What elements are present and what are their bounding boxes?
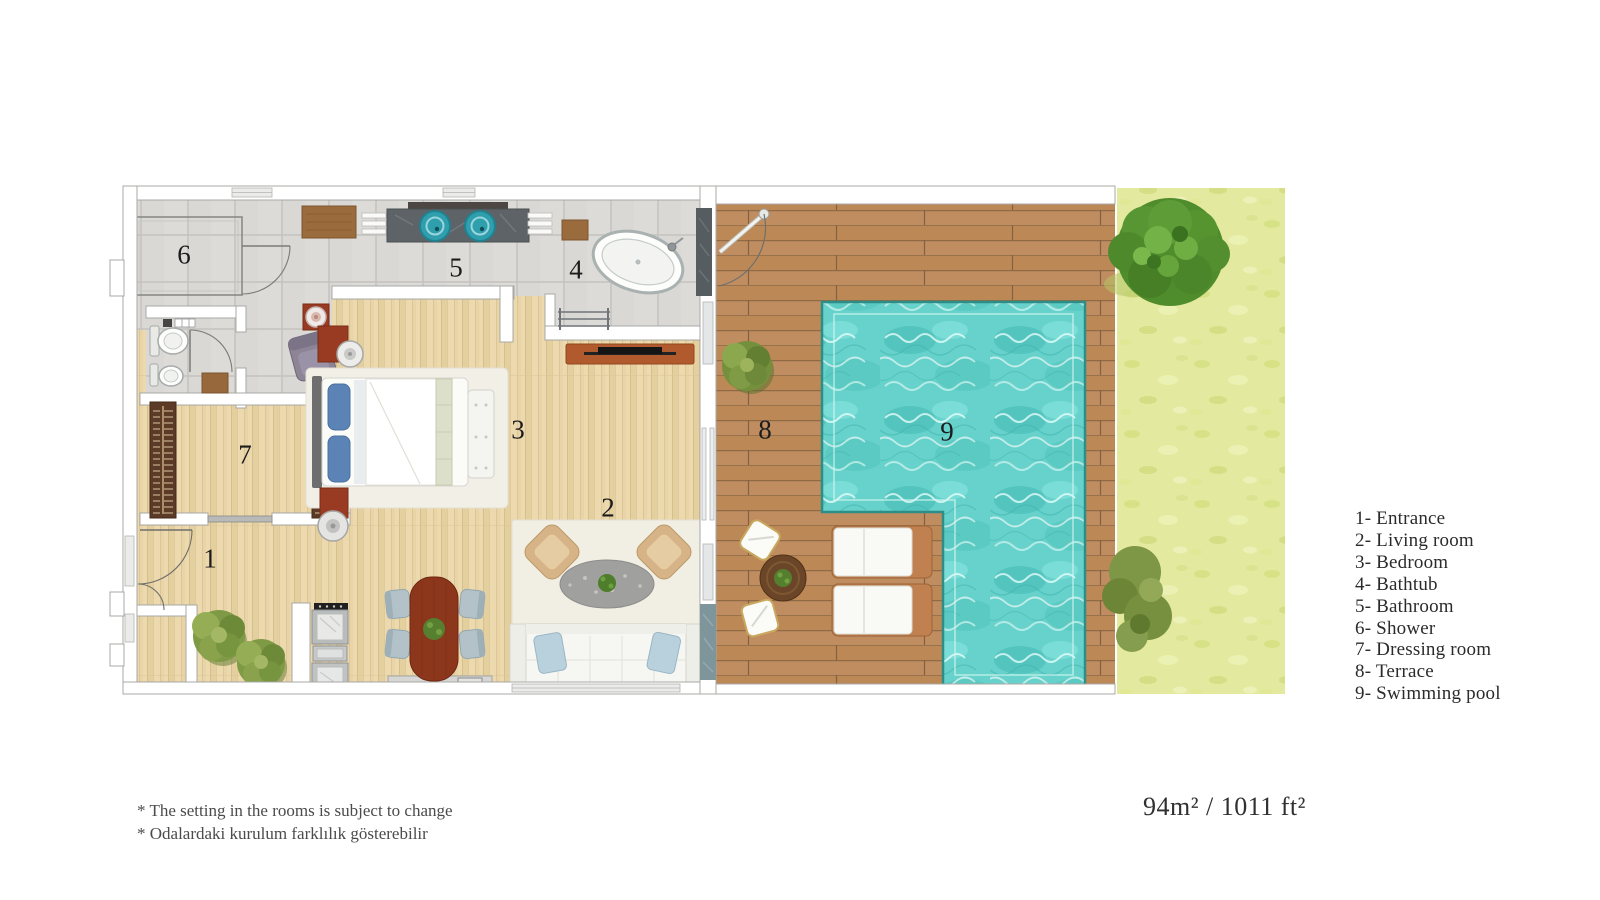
lamp-icon [337, 341, 363, 367]
room-label-terrace: 8 [758, 415, 772, 446]
sink-icon [465, 211, 495, 241]
room-label-shower: 6 [177, 240, 191, 271]
window-icon [125, 614, 134, 642]
legend-item: 9- Swimming pool [1355, 683, 1501, 705]
window-icon [703, 302, 713, 364]
sink-icon [420, 211, 450, 241]
wc-cabinet [202, 373, 228, 393]
vent-grille-icon [175, 319, 195, 327]
terrace-chair [740, 598, 779, 637]
dining-chair [459, 629, 486, 659]
legend-item: 8- Terrace [1355, 661, 1501, 683]
lamp-icon [318, 511, 348, 541]
room-label-living-room: 2 [601, 493, 615, 524]
terrace-table [760, 555, 806, 601]
toilet-icon [150, 326, 188, 356]
sun-lounger [832, 526, 932, 578]
towel-rack-icon [362, 213, 386, 234]
legend-item: 4- Bathtub [1355, 574, 1501, 596]
legend: 1- Entrance 2- Living room 3- Bedroom 4-… [1355, 508, 1501, 705]
room-label-dressing-room: 7 [238, 440, 252, 471]
footnote-english: * The setting in the rooms is subject to… [137, 799, 453, 822]
room-label-bathroom: 5 [449, 253, 463, 284]
pillow-icon [328, 436, 350, 482]
dining-table [410, 577, 458, 681]
grass-area [1102, 188, 1285, 694]
window-icon [703, 544, 713, 600]
bed-bench [468, 390, 494, 478]
legend-item: 7- Dressing room [1355, 639, 1501, 661]
window-icon [125, 536, 134, 586]
coffee-table-rug [560, 560, 654, 608]
footnote-turkish: * Odalardaki kurulum farklılık gösterebi… [137, 822, 453, 845]
floorplan-page: 1 2 3 4 5 6 7 8 9 1- Entrance 2- Living … [0, 0, 1600, 900]
tv-icon [598, 347, 662, 354]
room-label-bedroom: 3 [511, 415, 525, 446]
towel-ladder-icon [558, 308, 610, 330]
tub-faucet-icon [668, 243, 676, 251]
sliding-door [208, 516, 272, 522]
plant-icon [774, 569, 792, 587]
towel-rack-icon [528, 213, 552, 234]
tv-console [566, 344, 694, 364]
wc-shelf-icon [163, 319, 172, 327]
legend-item: 3- Bedroom [1355, 552, 1501, 574]
plant-icon [423, 618, 445, 640]
sun-lounger [832, 584, 932, 636]
room-label-bathtub: 4 [569, 255, 583, 286]
room-label-swimming-pool: 9 [940, 417, 954, 448]
legend-item: 2- Living room [1355, 530, 1501, 552]
sofa [510, 624, 702, 688]
pillow-icon [328, 384, 350, 430]
legend-item: 6- Shower [1355, 618, 1501, 640]
sliding-glass-door-icon [702, 428, 706, 520]
dining-chair [385, 629, 412, 659]
area-label: 94m² / 1011 ft² [1143, 792, 1306, 822]
legend-item: 5- Bathroom [1355, 596, 1501, 618]
sliding-glass-door-icon [710, 428, 714, 520]
plant-icon [598, 574, 616, 592]
bidet-icon [150, 364, 183, 386]
room-label-entrance: 1 [203, 544, 217, 575]
footnotes: * The setting in the rooms is subject to… [137, 799, 453, 845]
bed [312, 376, 468, 488]
kitchen-appliances [312, 603, 348, 690]
vanity-counter [387, 209, 529, 242]
living-room [510, 520, 702, 688]
dining-chair [459, 589, 486, 619]
stool [562, 220, 588, 240]
tv-wall [545, 326, 707, 340]
pillow-icon [533, 632, 567, 674]
dining-chair [385, 589, 412, 619]
legend-item: 1- Entrance [1355, 508, 1501, 530]
